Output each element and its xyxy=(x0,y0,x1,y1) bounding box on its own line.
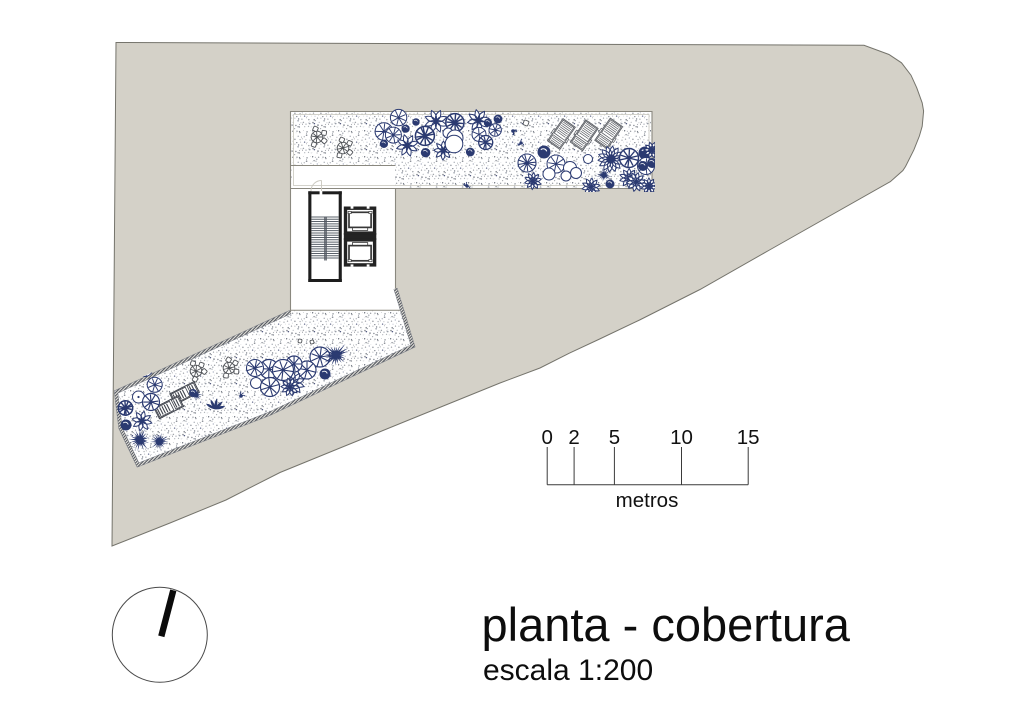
svg-text:0: 0 xyxy=(541,426,552,449)
svg-text:2: 2 xyxy=(568,426,579,449)
svg-text:10: 10 xyxy=(670,426,693,449)
svg-text:15: 15 xyxy=(737,426,760,449)
svg-text:5: 5 xyxy=(609,426,620,449)
svg-text:escala 1:200: escala 1:200 xyxy=(483,654,653,687)
svg-text:metros: metros xyxy=(616,489,679,512)
svg-text:planta - cobertura: planta - cobertura xyxy=(482,598,851,651)
